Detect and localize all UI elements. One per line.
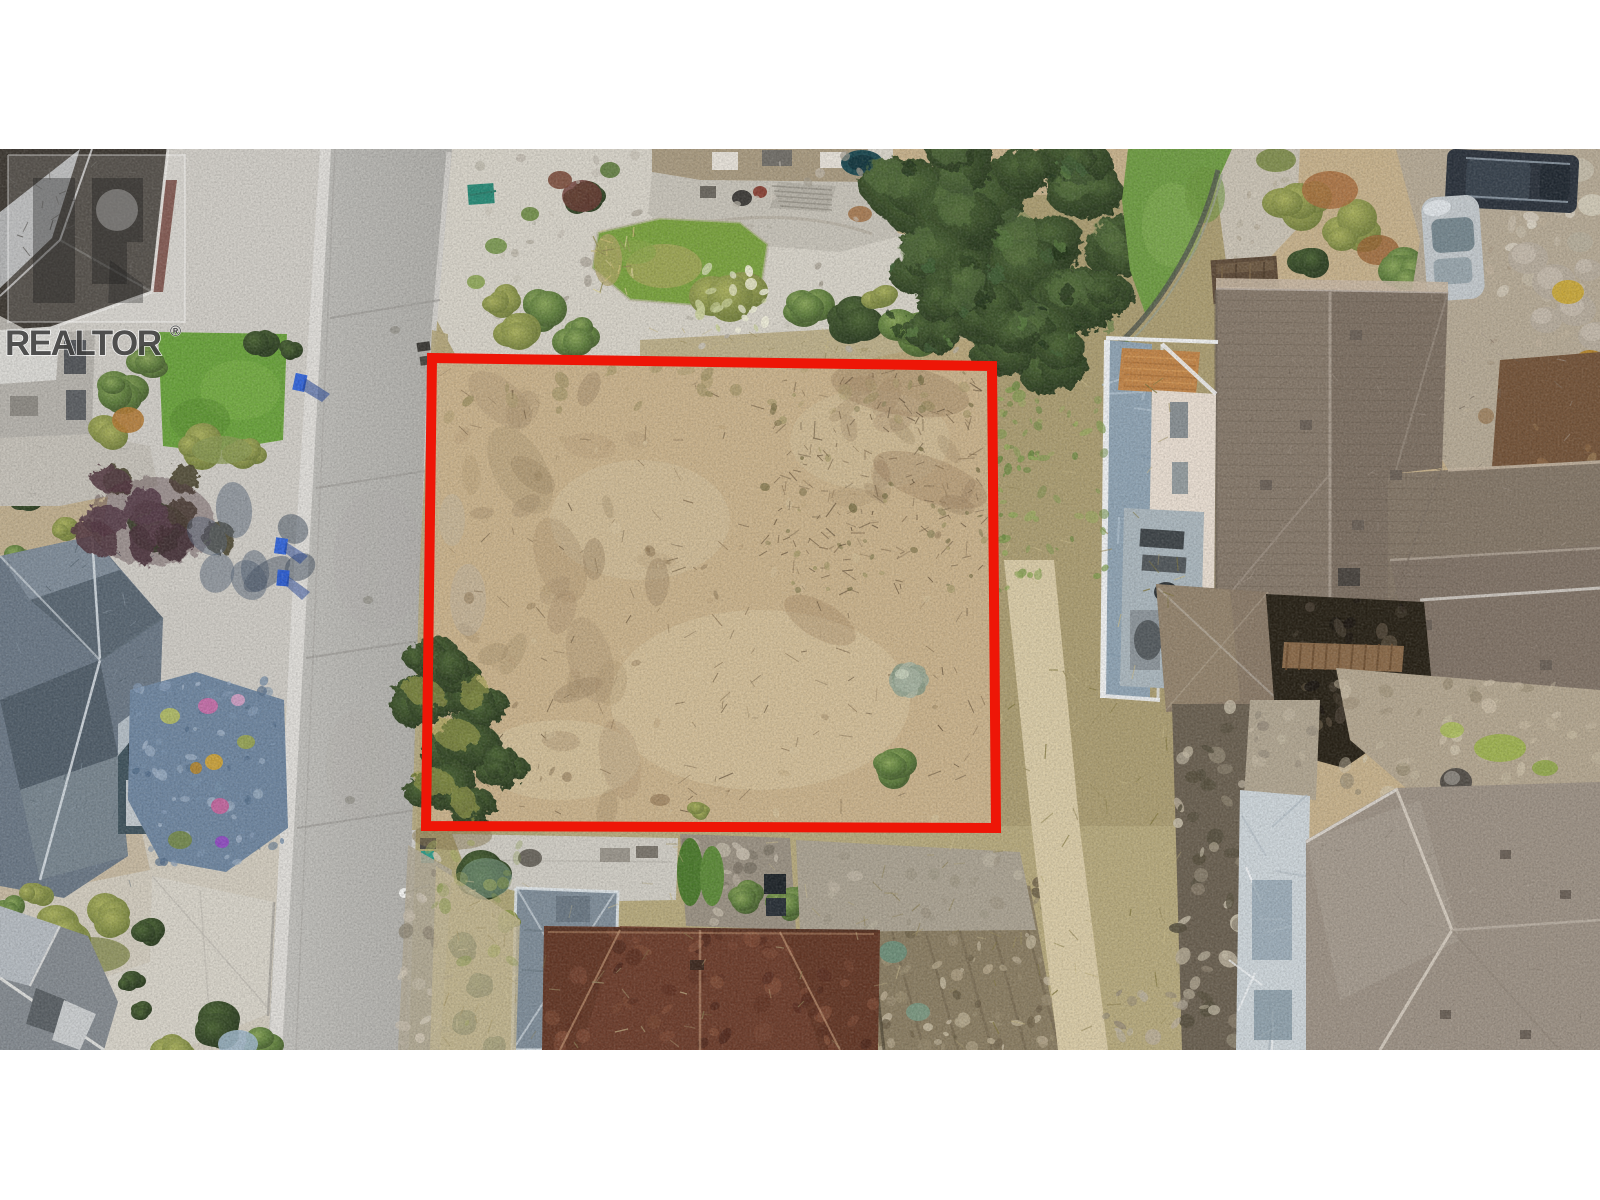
- svg-text:®: ®: [170, 323, 181, 340]
- svg-text:REALTOR: REALTOR: [5, 324, 163, 363]
